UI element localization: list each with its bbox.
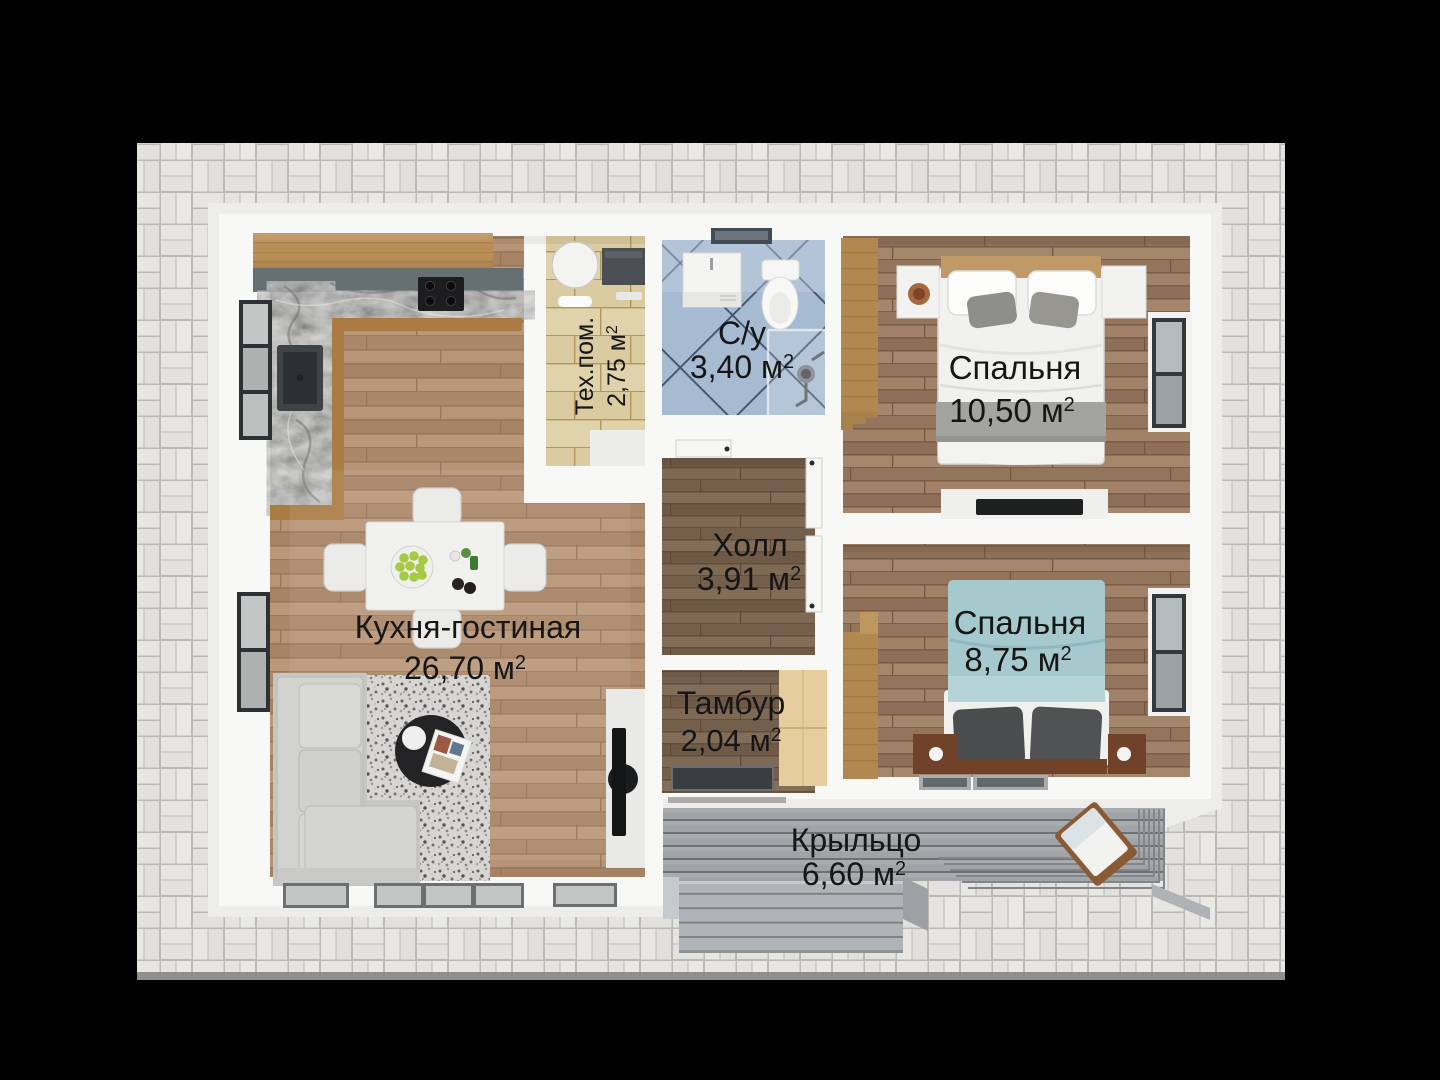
svg-text:Тамбур: Тамбур [677,685,786,721]
svg-text:6,60 м2: 6,60 м2 [802,856,906,892]
svg-text:Холл: Холл [712,527,787,563]
svg-text:3,91 м2: 3,91 м2 [697,561,801,597]
svg-text:3,40 м2: 3,40 м2 [690,349,794,385]
svg-text:Спальня: Спальня [954,604,1087,641]
svg-text:2,04 м2: 2,04 м2 [681,723,782,758]
svg-text:2,75 м2: 2,75 м2 [603,325,631,407]
svg-text:Тех.пом.: Тех.пом. [571,317,599,415]
svg-text:10,50 м2: 10,50 м2 [949,392,1075,429]
svg-text:8,75 м2: 8,75 м2 [964,641,1071,678]
svg-text:Спальня: Спальня [949,349,1082,386]
svg-text:Кухня-гостиная: Кухня-гостиная [355,609,581,645]
svg-text:Крыльцо: Крыльцо [791,822,922,858]
svg-text:26,70 м2: 26,70 м2 [404,650,526,686]
svg-text:С/у: С/у [718,315,766,351]
